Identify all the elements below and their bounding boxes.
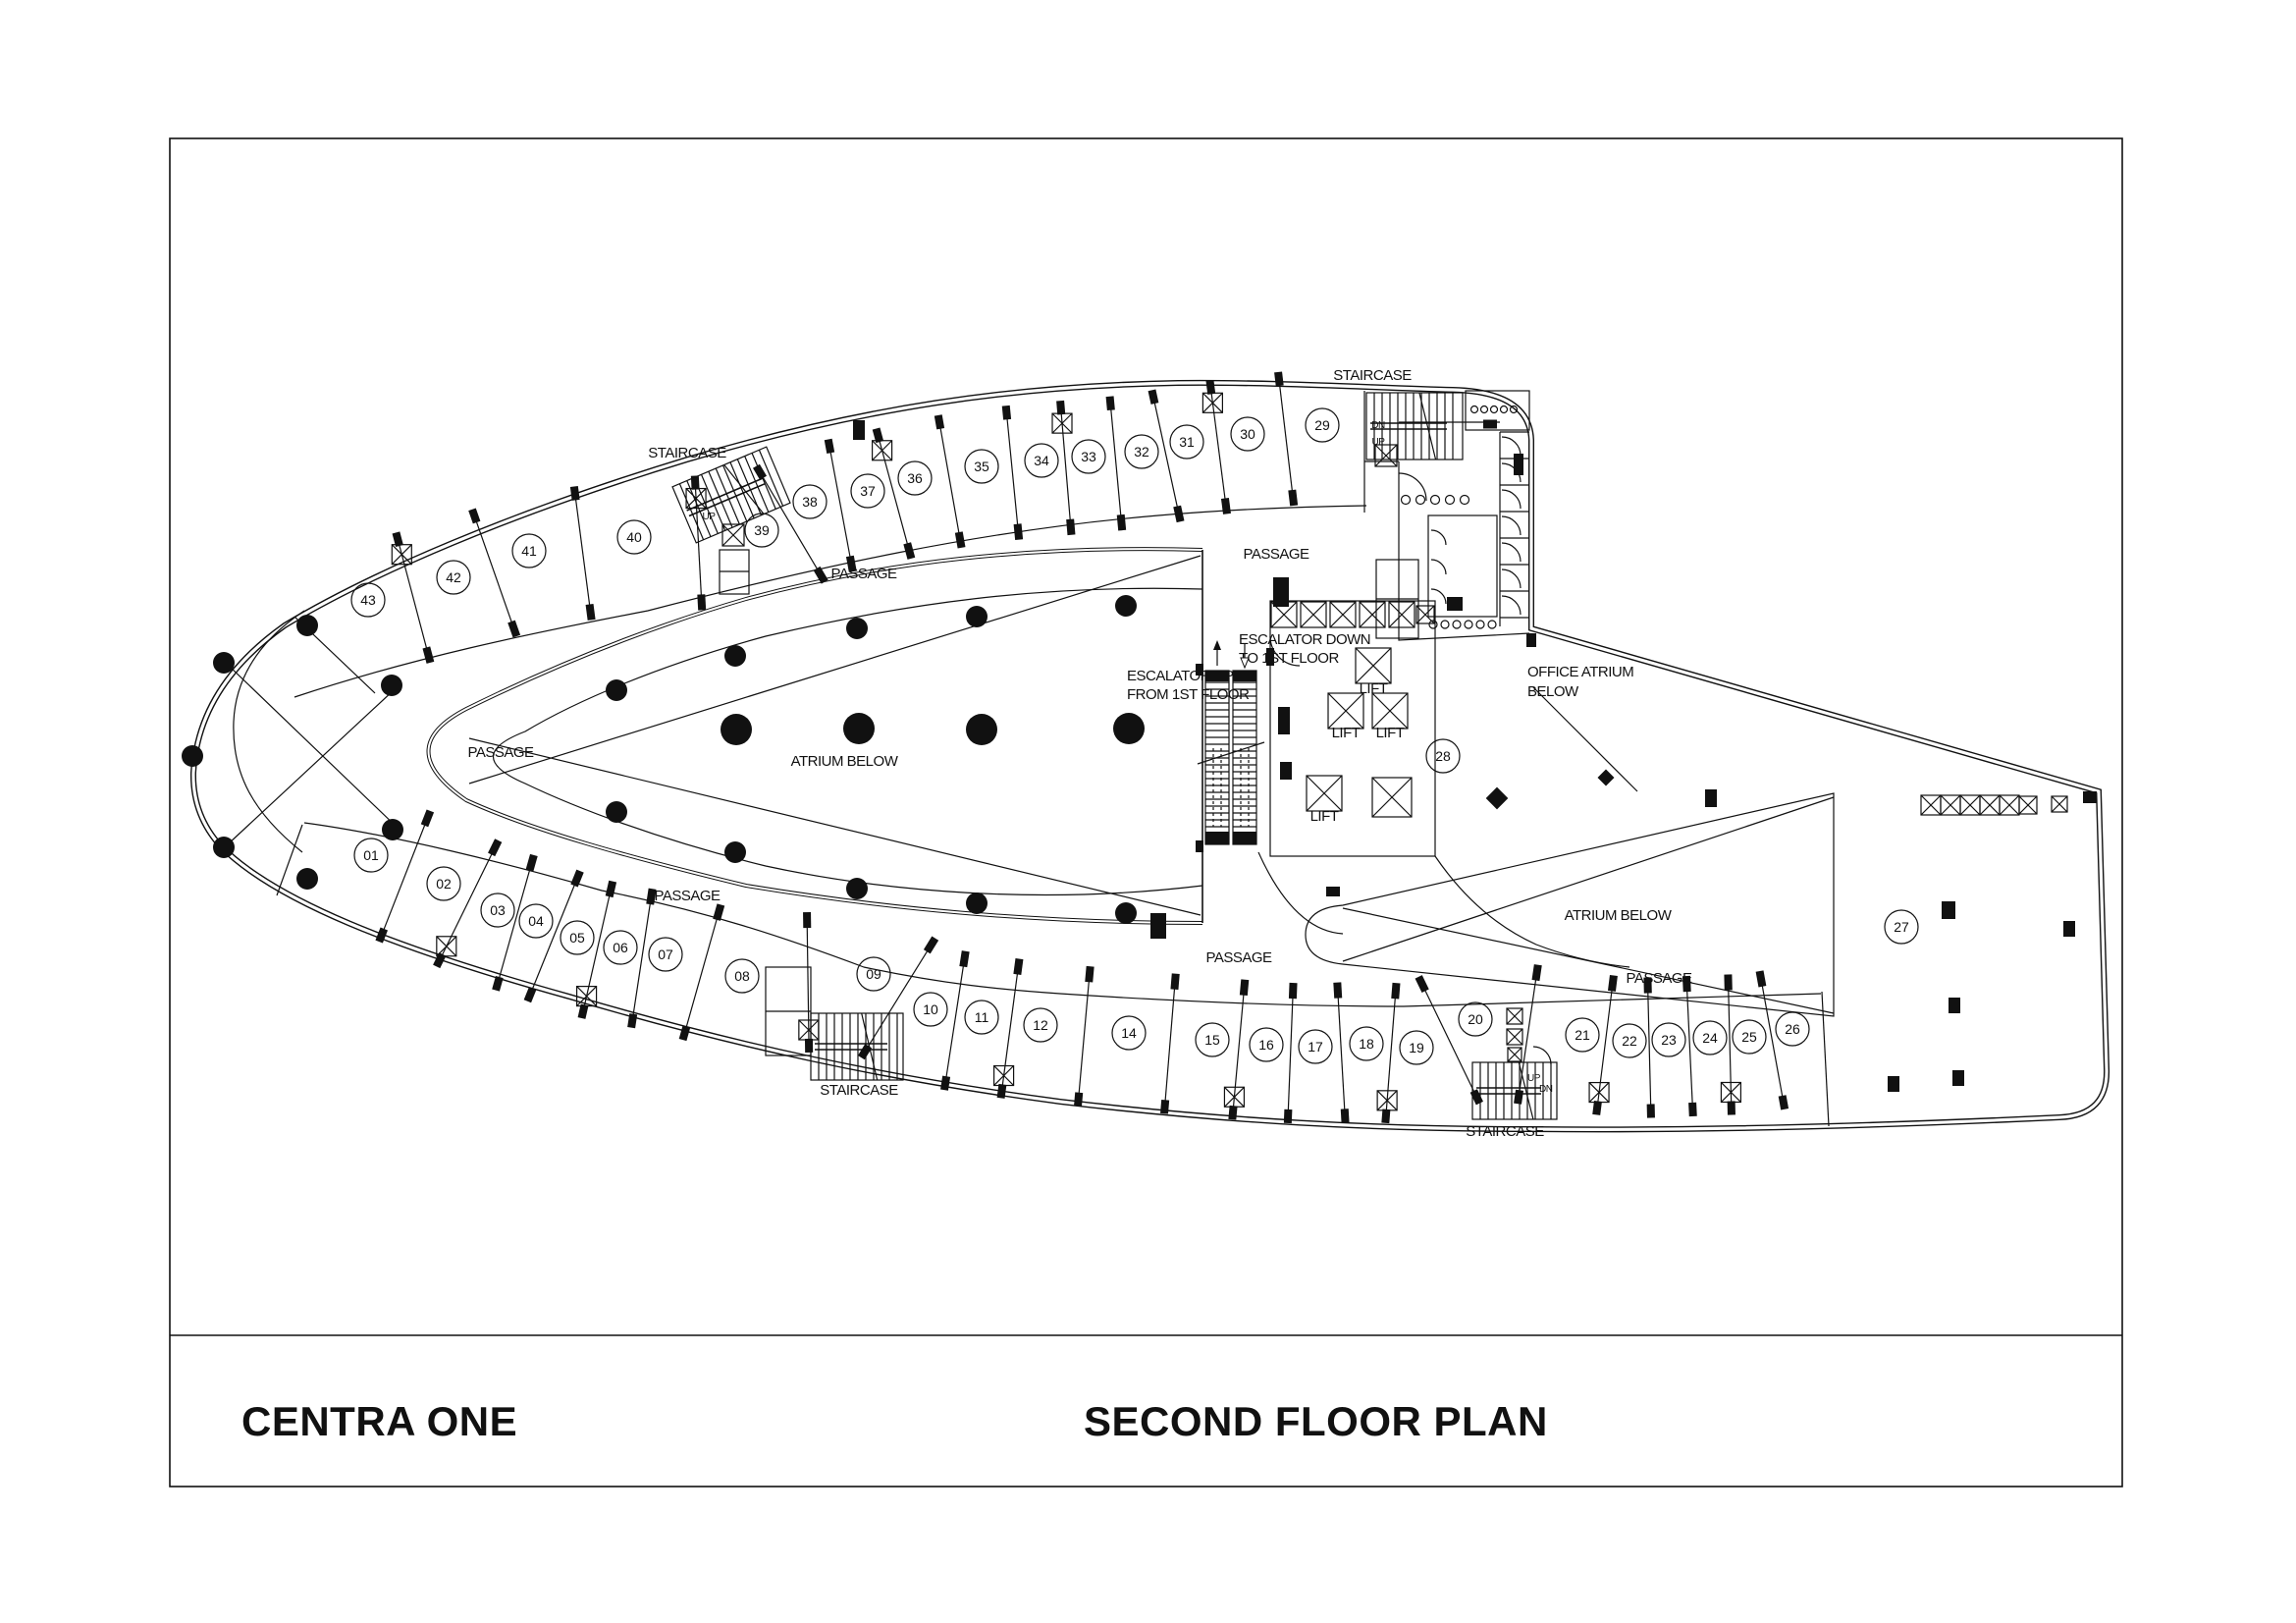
column-dot — [966, 893, 988, 914]
divider-column — [1085, 966, 1094, 983]
divider-column — [1284, 1109, 1293, 1123]
unit-number-11: 11 — [975, 1009, 989, 1025]
divider-column — [1647, 1104, 1655, 1117]
basin — [1465, 621, 1472, 628]
divider-column — [1592, 1101, 1602, 1115]
divider-column — [1160, 1100, 1169, 1114]
column-dot — [724, 645, 746, 667]
unit-number-05: 05 — [569, 930, 585, 946]
unit-divider — [440, 847, 495, 960]
toilet-stall-door — [1431, 560, 1446, 574]
divider-column — [1014, 523, 1024, 540]
toilet-stall-door — [1502, 569, 1521, 588]
unit-number-27: 27 — [1894, 919, 1909, 935]
wall-column-mark — [1598, 770, 1615, 786]
escalator-cap — [1233, 671, 1256, 681]
escalator-cap — [1205, 671, 1229, 681]
divider-column — [934, 414, 944, 429]
label-below: BELOW — [1527, 683, 1579, 700]
toilet-stall-door — [1502, 516, 1521, 535]
divider-column — [1756, 970, 1767, 987]
wall-column-mark — [1942, 901, 1955, 919]
unit-number-16: 16 — [1258, 1037, 1274, 1053]
escalator-up-arrow-head — [1213, 640, 1221, 650]
unit-number-09: 09 — [866, 966, 881, 982]
drawing-sheet: 0102030405060708091011121415161718192021… — [0, 0, 2296, 1623]
divider-column — [488, 839, 502, 856]
drawing-title: SECOND FLOOR PLAN — [1084, 1398, 1548, 1444]
unit-number-04: 04 — [528, 913, 544, 929]
unit-number-31: 31 — [1179, 434, 1195, 450]
unit-divider — [939, 422, 960, 540]
label-lift: LIFT — [1310, 808, 1339, 825]
divider-column — [526, 854, 538, 872]
divider-column — [1381, 1109, 1390, 1123]
column-dot — [381, 675, 402, 696]
unit-divider — [1233, 988, 1245, 1112]
label-passage: PASSAGE — [654, 888, 721, 904]
unit-number-39: 39 — [754, 522, 770, 538]
divider-column — [1074, 1092, 1083, 1107]
basin — [1402, 496, 1411, 505]
divider-column — [803, 912, 811, 928]
unit-number-20: 20 — [1468, 1011, 1483, 1027]
column-dot — [296, 868, 318, 890]
unit-number-15: 15 — [1204, 1032, 1220, 1048]
divider-column — [1240, 979, 1249, 996]
unit-divider — [1288, 991, 1293, 1116]
toilet-stall-door — [1502, 490, 1521, 509]
project-title: CENTRA ONE — [241, 1398, 517, 1444]
column-dot-large — [843, 713, 875, 744]
unit-number-10: 10 — [923, 1001, 938, 1017]
wall-column-mark — [1196, 664, 1203, 676]
column-dot — [296, 615, 318, 636]
column-dot — [213, 837, 235, 858]
basin — [1488, 621, 1496, 628]
column-dot — [382, 819, 403, 840]
basin — [1441, 621, 1449, 628]
unit-divider — [1001, 966, 1018, 1091]
unit-number-02: 02 — [436, 876, 452, 892]
label-passage: PASSAGE — [467, 744, 534, 761]
divider-column — [1779, 1095, 1789, 1109]
column-dot — [606, 679, 627, 701]
divider-column — [959, 950, 969, 967]
divider-column — [1173, 506, 1184, 522]
divider-column — [1013, 958, 1023, 975]
basin — [1461, 496, 1469, 505]
wall-column-mark — [1514, 454, 1523, 475]
unit-number-37: 37 — [860, 483, 876, 499]
urinal — [1491, 406, 1498, 413]
divider-column — [586, 604, 596, 621]
floor-plan-canvas: 0102030405060708091011121415161718192021… — [0, 0, 2296, 1623]
divider-column — [1228, 1106, 1237, 1120]
unit-divider — [1153, 397, 1179, 514]
wall-column-mark — [1705, 789, 1717, 807]
unit-number-08: 08 — [734, 968, 750, 984]
label-office-atrium: OFFICE ATRIUM — [1527, 664, 1633, 680]
escalator-cap — [1233, 832, 1256, 844]
unit-divider — [1422, 984, 1477, 1097]
unit-number-12: 12 — [1033, 1017, 1048, 1033]
wall-column-mark — [1949, 998, 1960, 1013]
divider-column — [1148, 389, 1159, 404]
divider-column — [825, 439, 834, 454]
unit-number-33: 33 — [1081, 449, 1096, 464]
divider-column — [1341, 1109, 1350, 1122]
label-passage: PASSAGE — [1626, 970, 1692, 987]
unit-divider — [1729, 983, 1732, 1109]
wall-column-mark — [853, 420, 865, 440]
wall-column-mark — [1280, 762, 1292, 780]
toilet-stall-door — [1431, 530, 1446, 545]
divider-column — [468, 509, 480, 524]
basin — [1453, 621, 1461, 628]
label-passage: PASSAGE — [830, 566, 897, 582]
divider-column — [421, 809, 434, 827]
label-atrium-below: ATRIUM BELOW — [1565, 907, 1673, 924]
unit-number-24: 24 — [1702, 1030, 1718, 1046]
divider-column — [1170, 973, 1179, 990]
label-lift: LIFT — [1360, 680, 1388, 697]
label-to-1st-floor: TO 1ST FLOOR — [1239, 650, 1339, 667]
urinal — [1481, 406, 1488, 413]
unit-number-36: 36 — [907, 470, 923, 486]
divider-column — [1288, 490, 1298, 507]
unit-divider — [575, 493, 591, 612]
unit-number-28: 28 — [1435, 748, 1451, 764]
unit-number-42: 42 — [446, 569, 461, 585]
basin — [1431, 496, 1440, 505]
divider-column — [524, 987, 537, 1002]
wing-atrium-outline — [1306, 793, 1834, 1016]
divider-column — [805, 1039, 813, 1053]
tip-cross-lines — [228, 665, 400, 844]
unit-divider — [684, 912, 719, 1033]
divider-column — [1106, 396, 1115, 410]
wall-column-mark — [1273, 577, 1289, 607]
unit-number-26: 26 — [1785, 1021, 1800, 1037]
column-dot — [606, 801, 627, 823]
divider-column — [1688, 1103, 1697, 1116]
generated-plan-content: 0102030405060708091011121415161718192021… — [182, 367, 2097, 1140]
unit-number-43: 43 — [360, 592, 376, 608]
divider-column — [1333, 982, 1342, 998]
wall-column-mark — [1888, 1076, 1899, 1092]
wall-column-mark — [1196, 840, 1203, 852]
divider-column — [1117, 514, 1126, 531]
wall-column-mark — [1486, 787, 1509, 810]
divider-column — [1391, 983, 1400, 1000]
unit-divider — [498, 863, 532, 984]
unit-divider — [878, 435, 909, 551]
office-atrium-edge — [1533, 687, 1637, 791]
unit-number-07: 07 — [658, 947, 673, 962]
column-dot-large — [1113, 713, 1145, 744]
urinal — [1471, 406, 1478, 413]
unit-number-32: 32 — [1134, 444, 1149, 460]
column-dot — [966, 606, 988, 627]
escalator-cap — [1205, 832, 1229, 844]
unit-divider — [829, 446, 851, 564]
label-staircase: STAIRCASE — [820, 1082, 898, 1099]
wall-column-mark — [1447, 597, 1463, 611]
stair4-door-arc — [1533, 1047, 1551, 1064]
unit-number-06: 06 — [613, 940, 628, 955]
unit-divider — [632, 896, 651, 1021]
divider-column — [492, 976, 504, 992]
toilet-stall-door — [1502, 596, 1521, 615]
divider-column — [955, 531, 966, 548]
column-dot — [182, 745, 203, 767]
divider-column — [1066, 518, 1075, 535]
column-dot — [846, 878, 868, 899]
unit-divider — [945, 959, 964, 1084]
column-dot-large — [721, 714, 752, 745]
unit-divider — [474, 515, 513, 628]
label-passage: PASSAGE — [1205, 949, 1272, 966]
unit-number-22: 22 — [1622, 1033, 1637, 1049]
unit-divider — [1006, 412, 1018, 531]
unit-divider — [1338, 991, 1345, 1116]
wall-column-mark — [1326, 887, 1340, 896]
unit-divider — [1686, 984, 1692, 1109]
label-up: UP — [1527, 1073, 1541, 1084]
divider-column — [1724, 974, 1732, 990]
label-staircase: STAIRCASE — [648, 445, 726, 461]
divider-column — [422, 646, 434, 664]
wall-column-mark — [1150, 913, 1166, 939]
unit-number-18: 18 — [1359, 1036, 1374, 1052]
basin — [1476, 621, 1484, 628]
divider-column — [1289, 983, 1298, 999]
divider-column — [924, 937, 938, 954]
divider-column — [1415, 975, 1429, 993]
divider-column — [507, 621, 520, 638]
wall-column-mark — [1278, 707, 1290, 734]
divider-column — [713, 903, 724, 921]
wall-column-mark — [1526, 633, 1536, 647]
label-staircase: STAIRCASE — [1333, 367, 1412, 384]
column-dot — [846, 618, 868, 639]
wall-column-mark — [2063, 921, 2075, 937]
unit-divider — [1079, 974, 1090, 1099]
unit-number-29: 29 — [1314, 417, 1330, 433]
divider-column — [1608, 975, 1618, 992]
basin — [1416, 496, 1425, 505]
escalator-break-line — [1198, 742, 1264, 764]
divider-column — [940, 1076, 950, 1091]
unit-divider — [1110, 404, 1121, 522]
unit-number-19: 19 — [1409, 1040, 1424, 1055]
sheet-border — [170, 138, 2122, 1487]
unit-number-41: 41 — [521, 543, 537, 559]
urinal — [1501, 406, 1508, 413]
divider-column — [1056, 401, 1065, 415]
unit-number-03: 03 — [490, 902, 506, 918]
unit-divider — [1279, 379, 1293, 498]
divider-column — [1532, 964, 1542, 981]
label-atrium-below: ATRIUM BELOW — [791, 753, 899, 770]
unit-number-25: 25 — [1741, 1029, 1757, 1045]
divider-column — [1221, 498, 1231, 514]
divider-column — [1728, 1101, 1735, 1114]
column-dot — [1115, 902, 1137, 924]
column-dot — [213, 652, 235, 674]
label-passage: PASSAGE — [1243, 546, 1309, 563]
unit-divider — [807, 920, 809, 1046]
basin — [1446, 496, 1455, 505]
label-lift: LIFT — [1376, 725, 1405, 741]
atrium-cross-lines — [469, 556, 1201, 915]
unit-divider — [865, 945, 932, 1052]
unit-number-40: 40 — [626, 529, 642, 545]
label-escalator-down: ESCALATOR DOWN — [1239, 631, 1370, 648]
unit-number-38: 38 — [802, 494, 818, 510]
atrium-outer-rim — [429, 549, 1203, 923]
divider-column — [1514, 1090, 1523, 1105]
unit-divider — [1061, 407, 1071, 527]
atrium-outer-rim-inner — [429, 549, 1203, 923]
column-dot-large — [966, 714, 997, 745]
unit-divider — [1210, 387, 1226, 506]
divider-column — [1002, 406, 1011, 420]
unit-number-21: 21 — [1575, 1027, 1590, 1043]
label-lift: LIFT — [1332, 725, 1361, 741]
wall-column-mark — [2083, 791, 2097, 803]
divider-column — [697, 594, 706, 610]
label-staircase: STAIRCASE — [1466, 1123, 1544, 1140]
unit-number-35: 35 — [974, 459, 989, 474]
wall-column-mark — [1483, 420, 1497, 429]
unit-number-23: 23 — [1661, 1032, 1677, 1048]
column-dot — [1115, 595, 1137, 617]
tip-inner-ring — [234, 611, 304, 852]
label-from-1st-floor: FROM 1ST FLOOR — [1127, 686, 1250, 703]
unit-number-01: 01 — [363, 847, 379, 863]
unit-number-34: 34 — [1034, 453, 1049, 468]
toilet-stall-door — [1502, 543, 1521, 562]
wall-column-mark — [1952, 1070, 1964, 1086]
unit-divider — [1648, 986, 1651, 1111]
divider-column — [1274, 371, 1284, 386]
unit-number-17: 17 — [1308, 1039, 1323, 1055]
unit-number-14: 14 — [1121, 1025, 1137, 1041]
divider-column — [606, 881, 616, 897]
unit-divider — [1597, 983, 1613, 1108]
unit-number-30: 30 — [1240, 426, 1255, 442]
toilet-stall-door — [1431, 589, 1446, 604]
toilet-stall-door — [1502, 437, 1521, 456]
wall-column-mark — [1266, 648, 1274, 666]
column-dot — [724, 841, 746, 863]
